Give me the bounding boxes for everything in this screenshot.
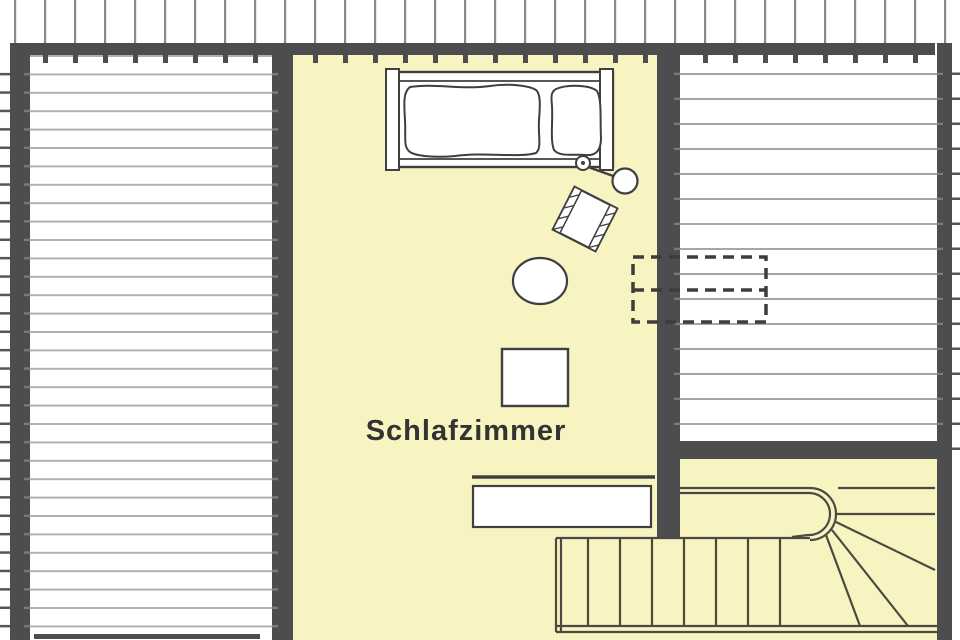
square-table-icon xyxy=(502,349,568,406)
lamp-head xyxy=(613,169,638,194)
duvet-icon xyxy=(404,85,540,157)
ticks-outer-right xyxy=(952,58,960,450)
bed-headboard xyxy=(386,69,399,170)
wall-bottom-stub xyxy=(34,634,260,639)
floor-plan-drawing: Schlafzimmer xyxy=(0,0,960,640)
notches-interior-left-wall xyxy=(272,58,278,636)
notches-interior-right-wall xyxy=(674,58,680,438)
double-bed-icon xyxy=(386,69,613,170)
oval-rug-icon xyxy=(513,258,567,304)
ticks-outer-left xyxy=(0,58,10,633)
pillow-icon xyxy=(551,86,601,155)
sideboard-body xyxy=(473,486,651,527)
notches-right-wall xyxy=(937,58,943,438)
roof-rafters-hatch xyxy=(4,0,954,43)
floor-plan: Schlafzimmer xyxy=(0,0,960,640)
attic-area-right xyxy=(680,55,937,441)
room-label: Schlafzimmer xyxy=(366,415,567,447)
notches-left-wall xyxy=(24,58,30,636)
rafter-teeth xyxy=(10,55,937,63)
wall-stair-top xyxy=(657,441,952,459)
wall-top xyxy=(10,43,935,55)
attic-area-left xyxy=(30,55,272,640)
bed-knob-center xyxy=(581,161,585,165)
bed-footboard xyxy=(600,69,613,170)
